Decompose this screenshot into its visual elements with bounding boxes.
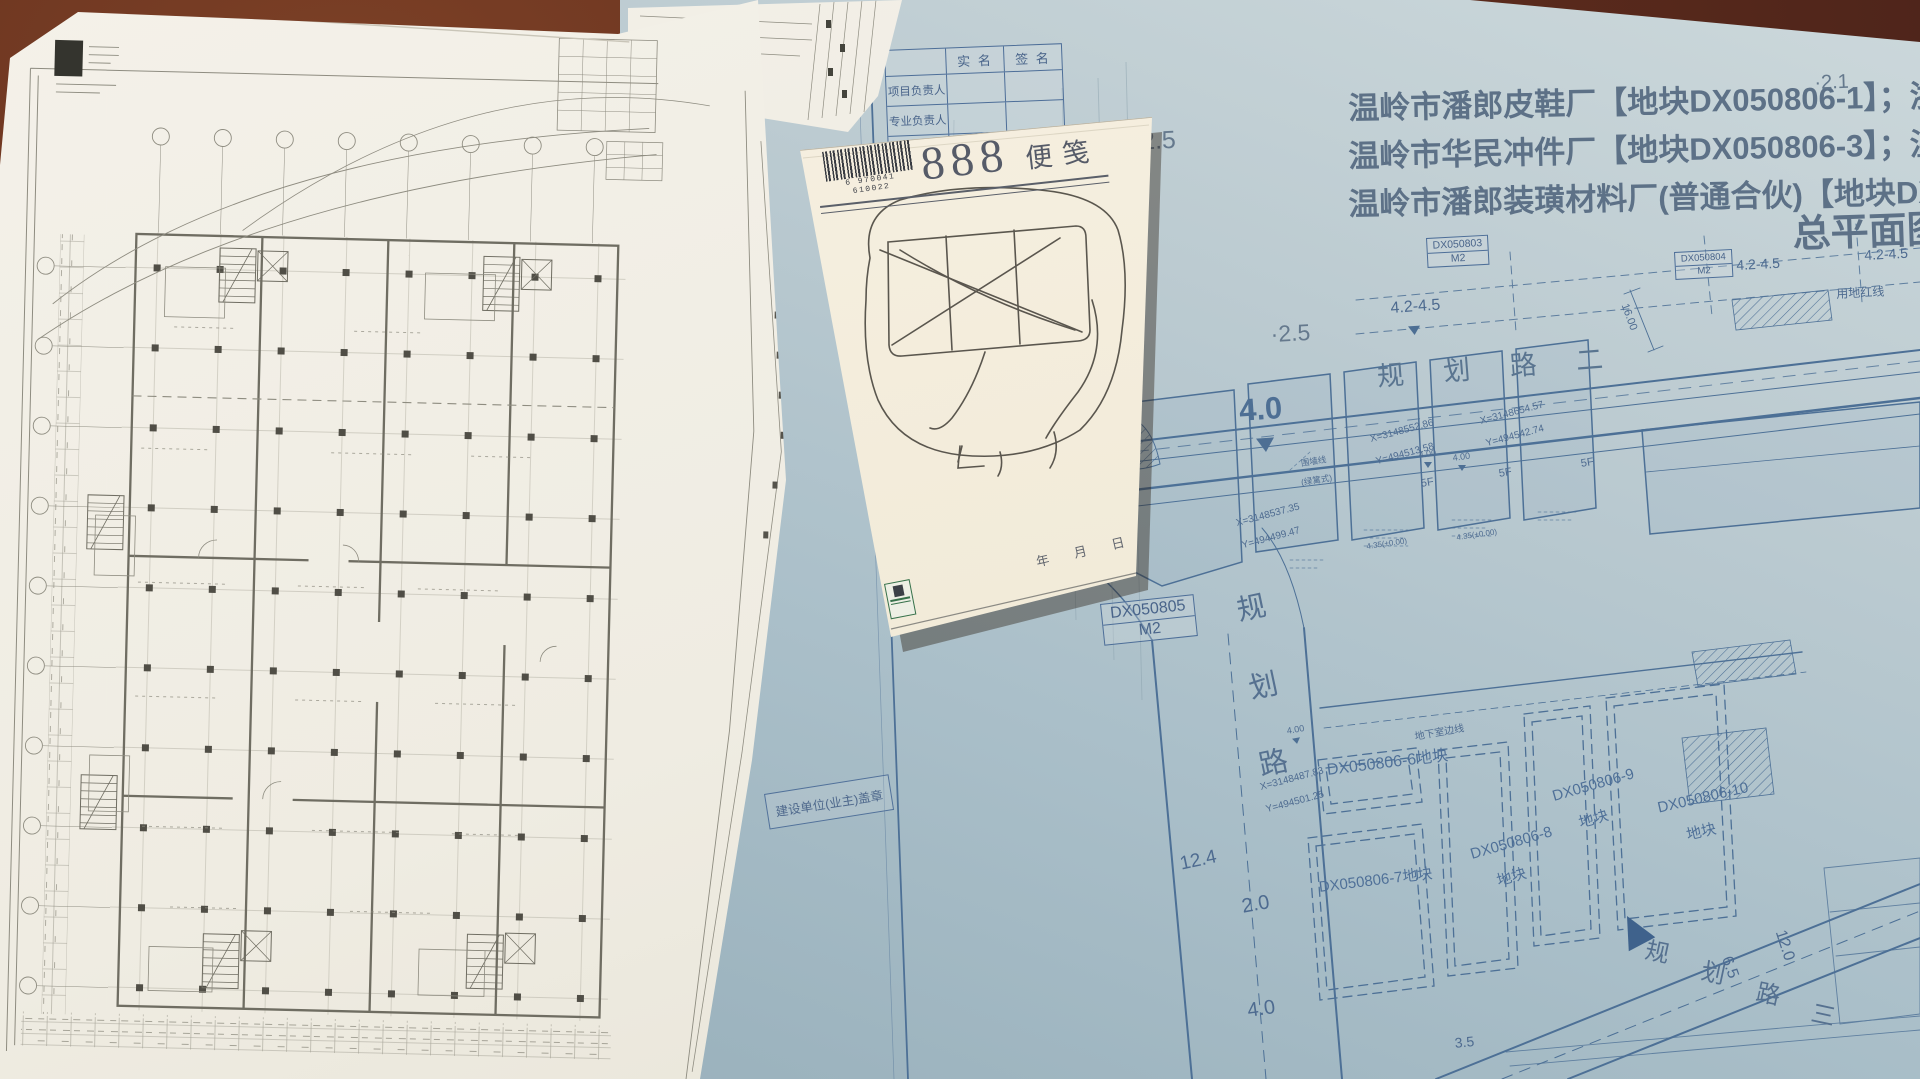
level-marker: 3.5 bbox=[1454, 1034, 1475, 1052]
sig-cell-blank bbox=[885, 49, 946, 76]
redline-note: 用地红线 bbox=[1836, 285, 1885, 301]
level-marker: 2.0 bbox=[1240, 891, 1271, 918]
floors-label: 5F bbox=[1580, 456, 1595, 470]
spot-elevation: ·2.5 bbox=[1270, 320, 1311, 348]
floors-label: 5F bbox=[1420, 476, 1435, 490]
stamp-glyph bbox=[893, 584, 905, 597]
sig-row-discipline-lead: 专业负责人 bbox=[887, 105, 948, 136]
photo-scene: 实 名签 名 项目负责人 专业负责人 温岭市潘郎皮鞋厂【地块DX050806-1… bbox=[0, 0, 1920, 1079]
elevation-range: 4.2-4.5 bbox=[1736, 256, 1780, 274]
fence-note: 围墙线 (绿篱式) bbox=[1282, 445, 1334, 499]
sig-row-project-lead: 项目负责人 bbox=[886, 75, 947, 106]
floors-label: 5F bbox=[1498, 466, 1513, 480]
spot-elevation: ·2.1 bbox=[1814, 71, 1849, 95]
parcel-tag-dx050803: DX050803 M2 bbox=[1426, 235, 1489, 268]
sig-header-realname: 实 名 bbox=[945, 46, 1004, 73]
level-marker-40: 4.0 bbox=[1238, 391, 1283, 429]
elevation-range: 4.2-4.5 bbox=[1390, 297, 1441, 318]
notepad-brand-text: 便笺 bbox=[1023, 129, 1101, 176]
level-marker-triangle-icon bbox=[1458, 465, 1466, 471]
level-marker-triangle-icon bbox=[1256, 437, 1275, 452]
elevation-range: 4.2-4.5 bbox=[1864, 246, 1908, 264]
sig-header-signature: 签 名 bbox=[1003, 44, 1062, 71]
elevation-marker-icon bbox=[1408, 326, 1421, 336]
level-marker: 4.0 bbox=[1246, 996, 1277, 1022]
parcel-tag-dx050804: DX050804 M2 bbox=[1674, 249, 1733, 280]
